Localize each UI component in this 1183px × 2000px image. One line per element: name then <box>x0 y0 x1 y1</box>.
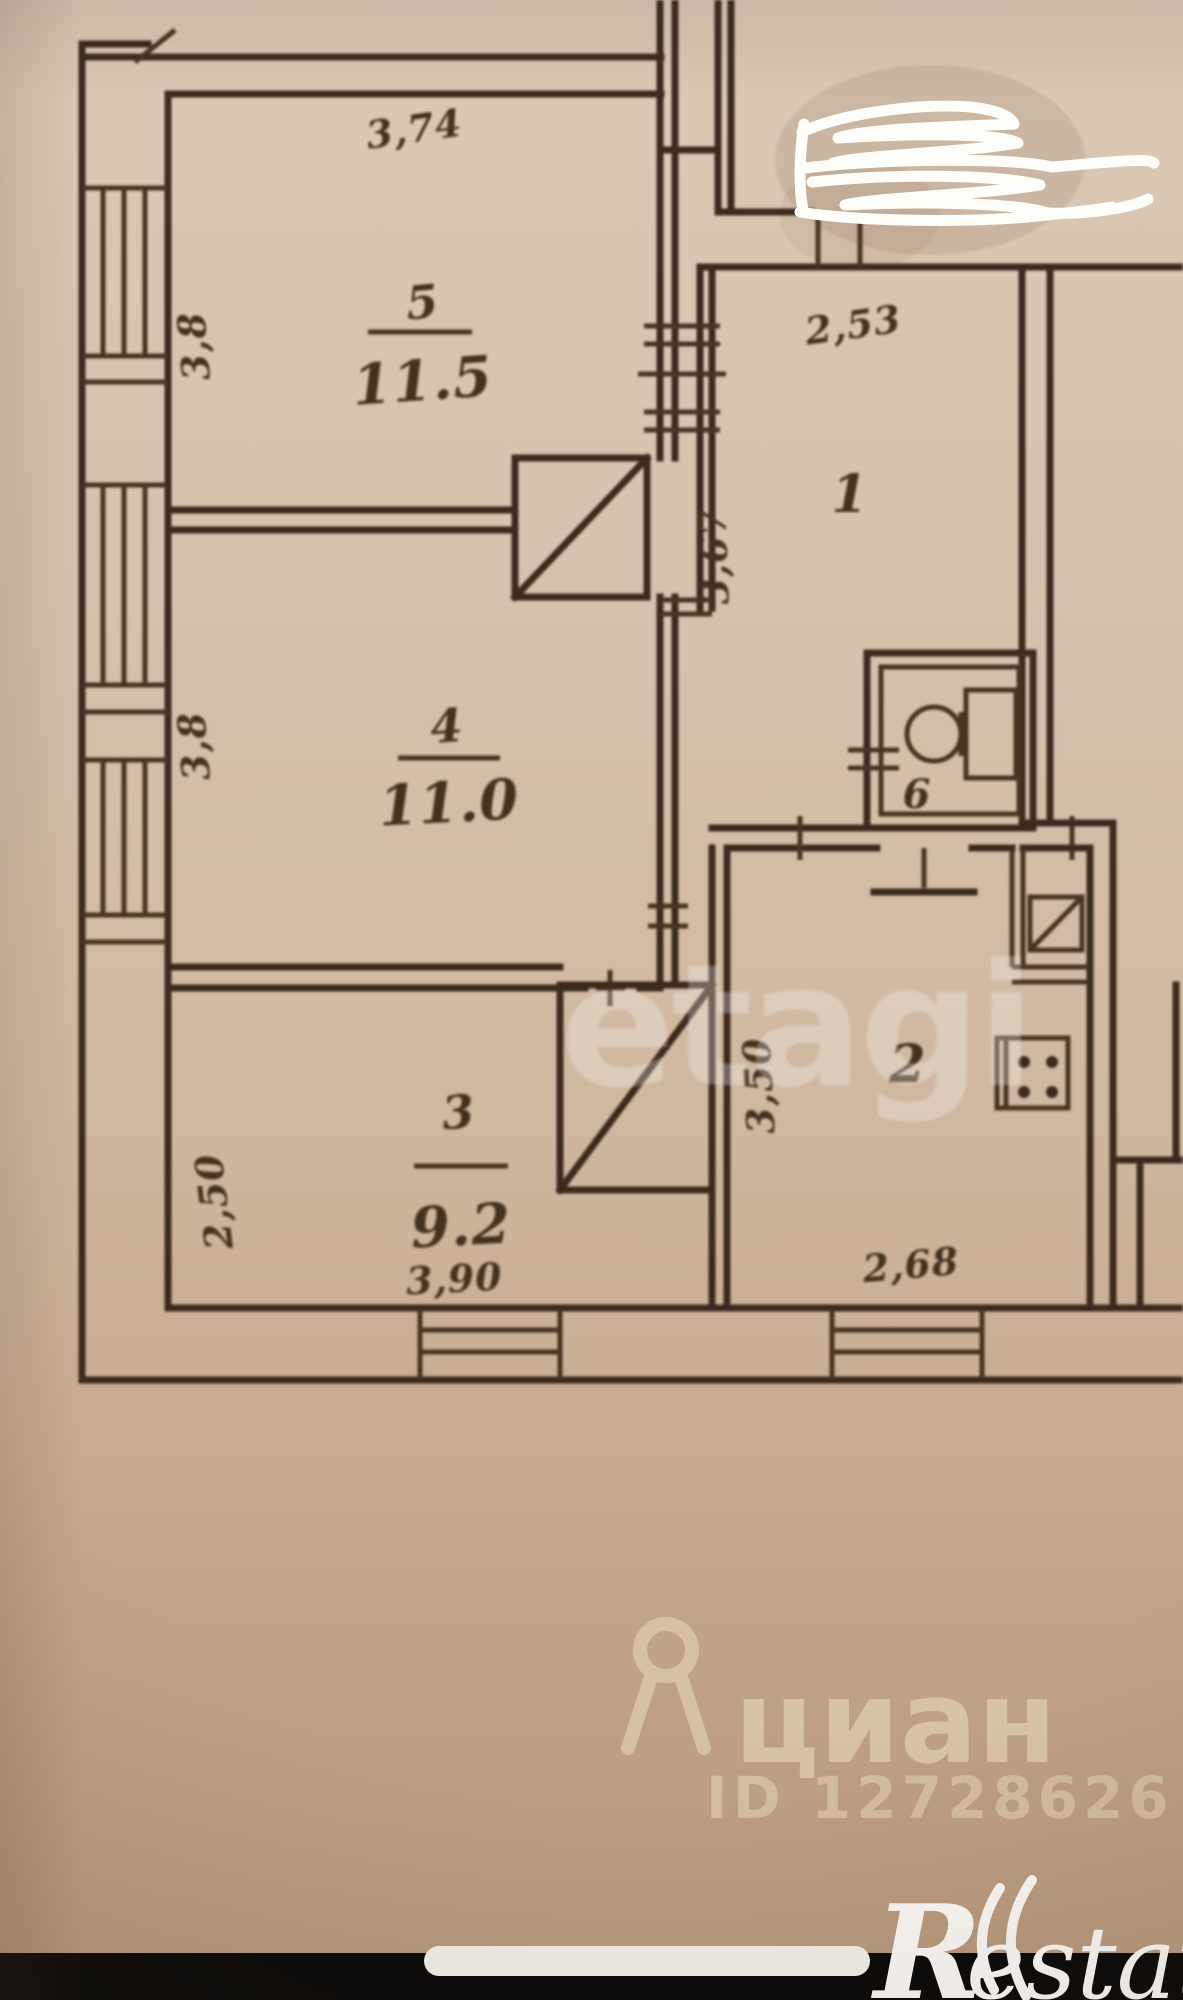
restate-rest: estate <box>966 1905 1183 2000</box>
home-indicator <box>424 1946 870 1976</box>
restate-logo: R estate <box>870 1876 1183 2000</box>
scribble-redaction <box>800 106 1154 220</box>
cian-watermark: циан ID 12728626 <box>628 1624 1174 1832</box>
floor-plan-photo: 5 11.5 4 11.0 3 9.2 1 2 6 3,74 3,8 3,8 2… <box>0 0 1183 2000</box>
overlay-layer: циан ID 12728626 R estate <box>0 0 1183 2000</box>
location-pin-icon <box>628 1624 704 1748</box>
cian-id: ID 12728626 <box>706 1764 1174 1832</box>
